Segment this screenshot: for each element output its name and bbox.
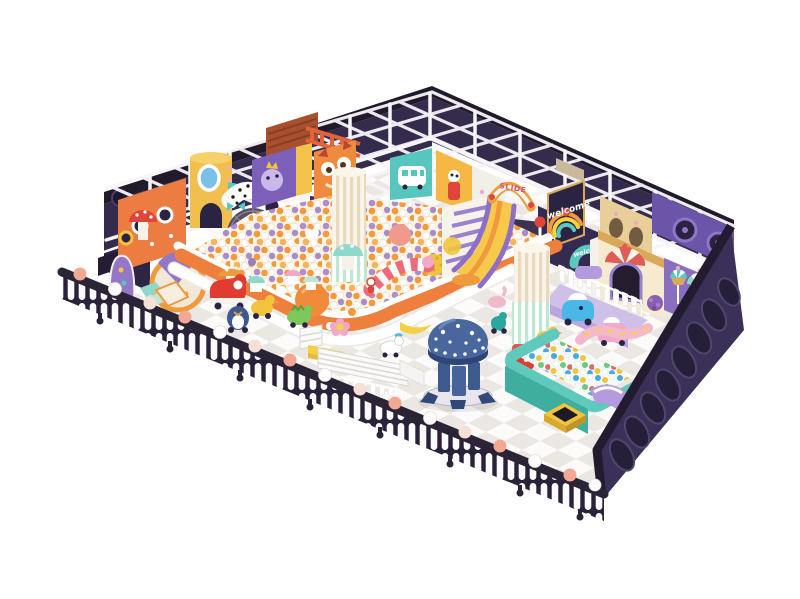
yellow-sliver-panel	[296, 143, 312, 196]
purple-sofa	[575, 266, 602, 279]
slide-bumper	[452, 274, 480, 286]
striped-column-b	[512, 243, 550, 344]
blue-penguin-scooter	[227, 306, 249, 333]
grape-cluster	[647, 295, 663, 311]
mini-figure	[367, 278, 375, 293]
playground-scene: welcome welcome	[0, 0, 800, 599]
pink-ball	[389, 224, 411, 246]
playground-render: welcome welcome	[0, 0, 800, 599]
